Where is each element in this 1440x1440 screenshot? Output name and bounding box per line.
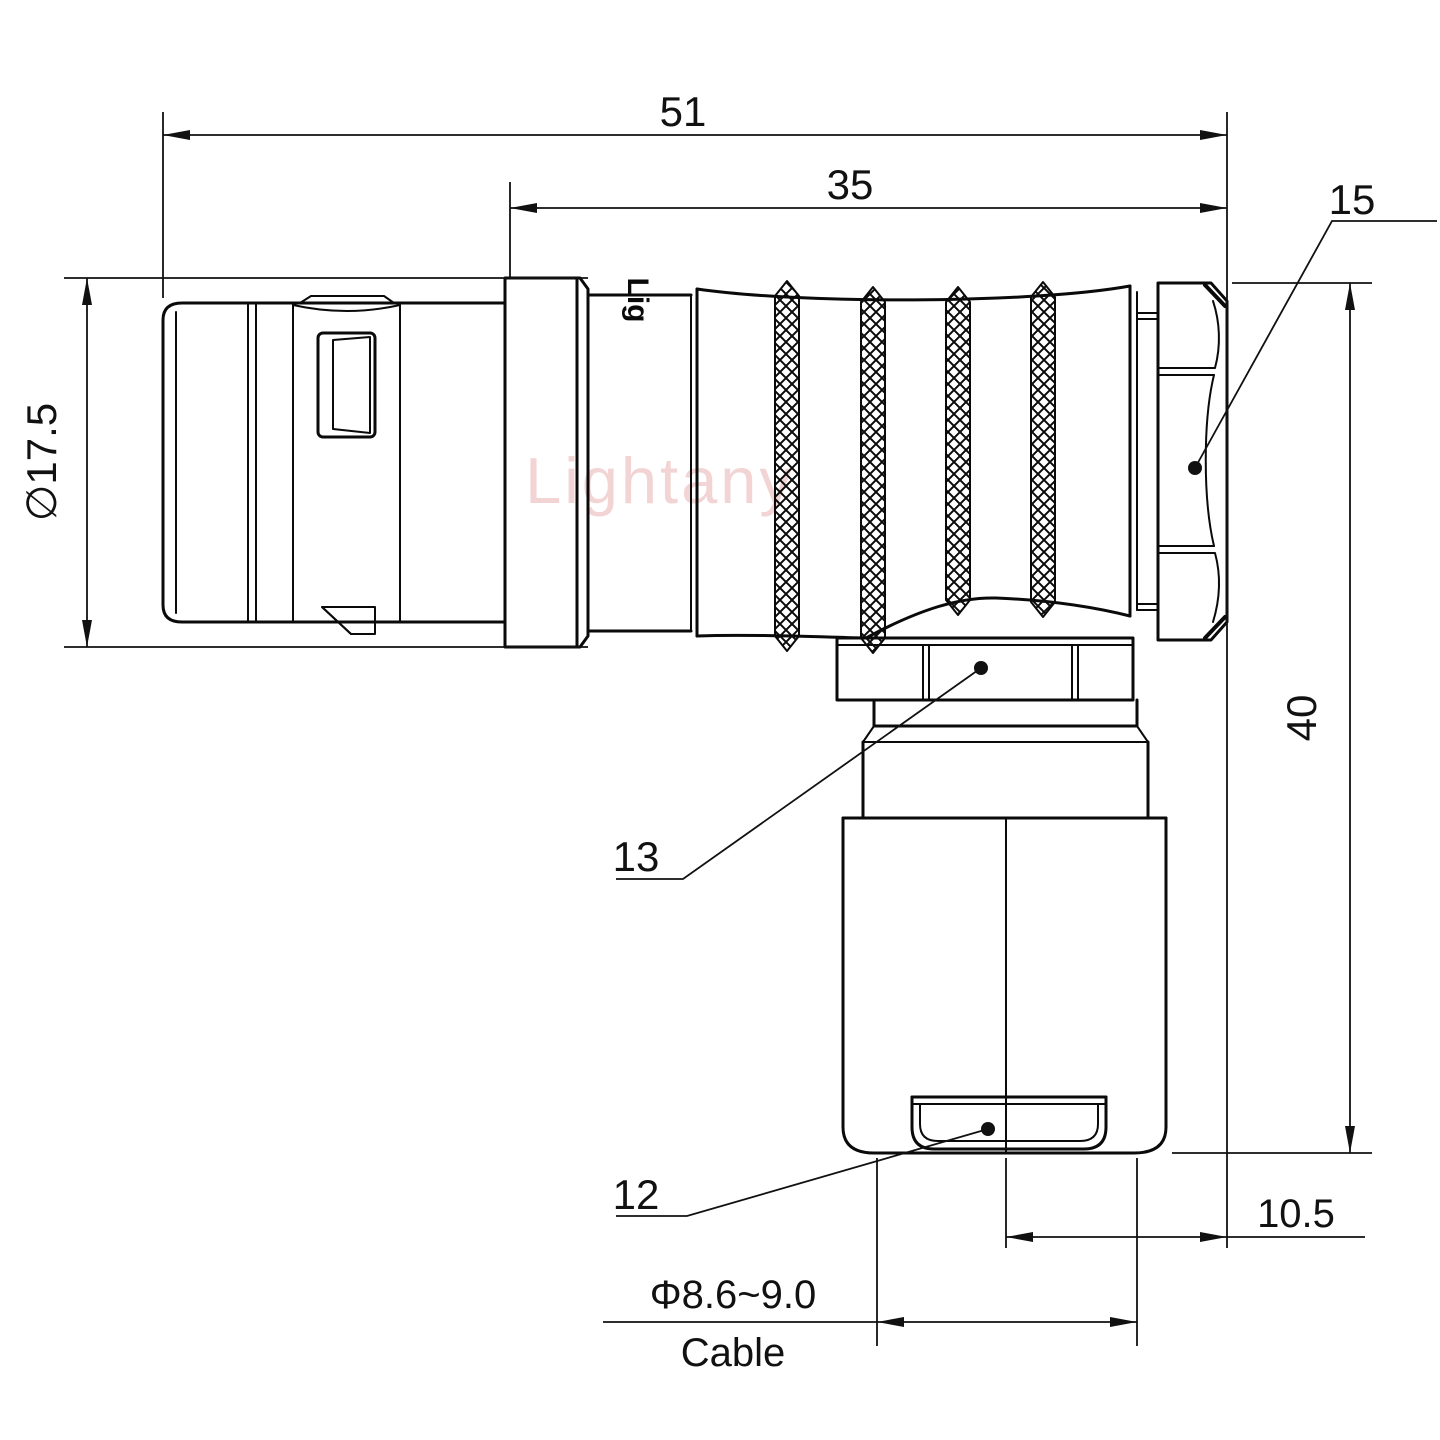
key-window	[318, 333, 375, 437]
dim-front-diameter-text: ∅17.5	[18, 403, 65, 521]
dim-height: 40	[1172, 283, 1372, 1153]
knurl-band-1	[775, 281, 799, 651]
nut-corner-chamfers	[1205, 285, 1225, 638]
nut-facet-curve-mid	[1206, 375, 1214, 546]
knurl-band-3	[946, 287, 970, 615]
front-groove	[248, 303, 256, 622]
dim-cable-diameter: Φ8.6~9.0 Cable	[603, 1158, 1137, 1375]
neck	[1137, 313, 1158, 610]
ref-15-text: 15	[1329, 176, 1376, 223]
strain-relief-barrel	[843, 818, 1166, 1153]
nut-facet-curve-top	[1213, 301, 1219, 368]
body-engraving-text: Lig	[621, 278, 654, 323]
key-section-edges	[293, 303, 400, 622]
dim-offset-text: 10.5	[1257, 1192, 1335, 1236]
grip-bottom-edge	[697, 598, 1130, 638]
dim-height-text: 40	[1278, 695, 1325, 742]
nut-facet-curve-bottom	[1213, 553, 1219, 622]
clamp-cylinder	[863, 742, 1148, 818]
drawing-canvas: Lightany	[0, 0, 1440, 1440]
watermark-text: Lightany	[525, 444, 795, 517]
dim-body-length-text: 35	[827, 161, 874, 208]
cable-bushing-cap	[912, 1097, 1106, 1149]
dim-overall-length: 51	[163, 88, 1227, 1248]
cable-label-text: Cable	[681, 1331, 786, 1375]
dim-body-length: 35	[510, 161, 1227, 277]
dim-overall-length-text: 51	[660, 88, 707, 135]
key-top-curve	[293, 305, 400, 311]
ref-15-coupling-nut: 15	[1188, 176, 1437, 475]
dim-front-diameter: ∅17.5	[18, 278, 588, 647]
ref-12-text: 12	[613, 1171, 660, 1218]
front-shell	[163, 296, 505, 634]
grip-top-edge	[697, 286, 1130, 300]
knurl-band-4	[1031, 282, 1055, 617]
technical-drawing: Lightany	[0, 0, 1440, 1440]
ref-13-text: 13	[613, 833, 660, 880]
washer-ring	[874, 700, 1137, 726]
ref-12-bushing: 12	[613, 1122, 995, 1218]
knurl-band-2	[861, 287, 885, 653]
flare-ring	[863, 726, 1148, 742]
ref-13-back-nut: 13	[613, 661, 988, 880]
connector-plug: Lig	[163, 278, 1227, 1154]
dim-cable-diameter-text: Φ8.6~9.0	[650, 1273, 816, 1317]
dim-offset: 10.5	[1006, 1158, 1365, 1248]
